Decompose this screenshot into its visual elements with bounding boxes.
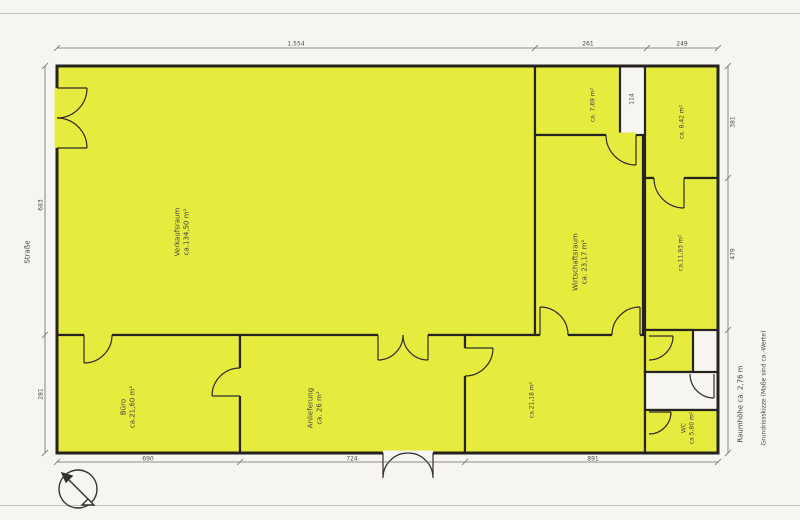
dim-right-1: 381 — [730, 116, 737, 127]
street-label: Straße — [24, 240, 33, 263]
dim-left-2: 281 — [38, 388, 45, 399]
room-label-anlieferung: Anlieferung ca. 26 m² — [306, 388, 324, 428]
room-label-nebenraum: ca. 7,69 m² — [589, 88, 597, 122]
room-label-verkaufsraum: Verkaufsraum ca.134,50 m² — [173, 208, 191, 257]
room-label-lager: ca.21,18 m² — [528, 382, 536, 418]
room-height-note: Raumhöhe ca. 2,76 m — [737, 365, 746, 442]
dim-right-2: 479 — [730, 248, 737, 259]
dim-inner-1: 114 — [629, 93, 636, 104]
room-anlieferung — [240, 335, 465, 453]
room-label-buero: Büro ca.21,60 m² — [119, 386, 137, 428]
dim-bottom-2: 724 — [346, 456, 357, 463]
door-icon-exit-1 — [383, 453, 408, 478]
dim-bottom-3: 891 — [587, 456, 598, 463]
room-label-wc: WC ca 5,80 m² — [681, 412, 696, 444]
door-icon-exit-2 — [408, 453, 433, 478]
scanned-floor-plan-page: Verkaufsraum ca.134,50 m² ca. 7,69 m² Wi… — [0, 0, 800, 520]
room-lager — [465, 335, 645, 453]
sketch-note: Grundrissskizze (Maße sind ca.-Werte) — [760, 331, 768, 446]
room-nebenraum — [535, 66, 620, 135]
room-verkaufsraum — [57, 66, 535, 335]
dim-left-1: 683 — [38, 199, 45, 210]
room-wirtschaftsraum — [535, 135, 643, 335]
dim-top-3: 249 — [676, 41, 687, 48]
dim-top-1: 1.554 — [287, 41, 304, 48]
dim-bottom-1: 690 — [142, 456, 153, 463]
room-label-abstell-oben: ca. 8,42 m² — [678, 105, 686, 139]
room-shapes — [57, 66, 718, 453]
north-arrow-icon — [59, 470, 97, 508]
room-label-wirtschaftsraum: Wirtschaftsraum ca. 23,17 m² — [571, 233, 589, 291]
room-label-abstell-mitte: ca.11,93 m² — [677, 235, 685, 271]
dim-top-2: 261 — [582, 41, 593, 48]
room-vorraum — [645, 372, 718, 410]
